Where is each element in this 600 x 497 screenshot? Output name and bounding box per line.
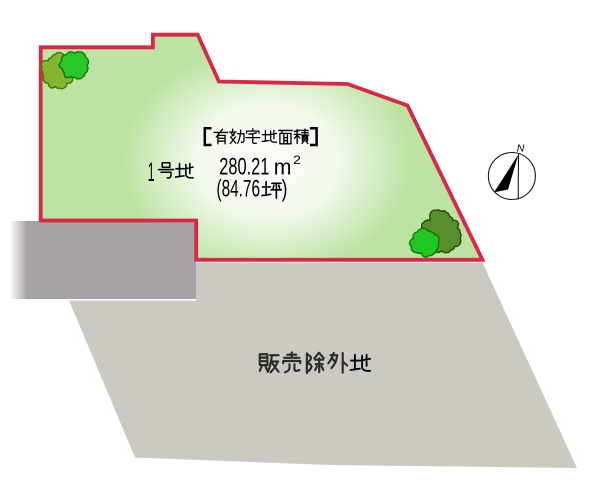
- svg-text:2: 2: [293, 153, 301, 167]
- svg-text:N: N: [517, 142, 525, 154]
- svg-text:1: 1: [148, 157, 155, 187]
- svg-text:(84.76: (84.76: [217, 175, 261, 202]
- svg-text:): ): [282, 175, 288, 202]
